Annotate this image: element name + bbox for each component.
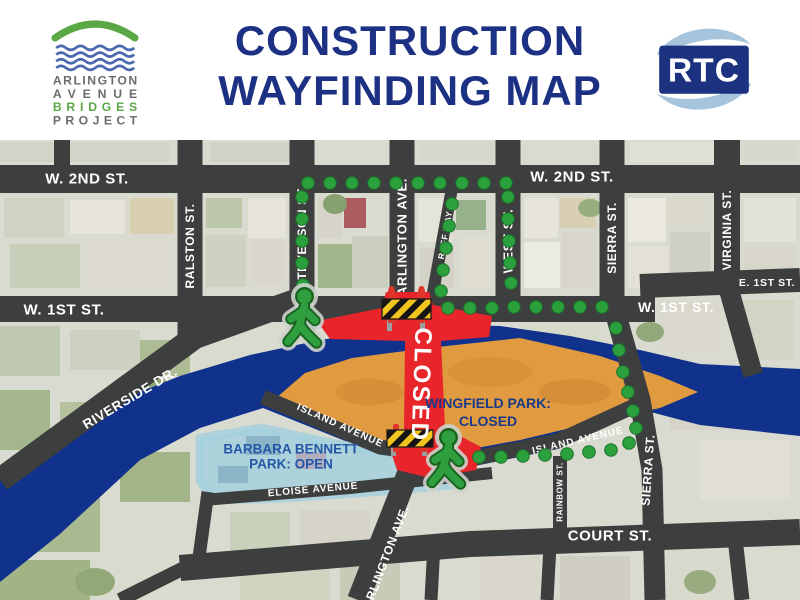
detour-dot (503, 235, 516, 248)
detour-dot (296, 191, 309, 204)
detour-dot (456, 177, 469, 190)
aerial-patch (206, 198, 242, 228)
detour-dot (502, 213, 515, 226)
wayfinding-poster: ARLINGTON AVENUE BRIDGES PROJECT CONSTRU… (0, 0, 800, 600)
detour-dot (412, 177, 425, 190)
street-minor-2 (547, 546, 550, 600)
aerial-patch (318, 244, 352, 288)
aerial-patch (250, 240, 286, 286)
aerial-patch (630, 142, 720, 162)
detour-dot (464, 302, 477, 315)
logo-text-bridges: BRIDGES (53, 100, 137, 114)
detour-dot (296, 235, 309, 248)
tree-patch (323, 194, 347, 214)
wingfield-label-line1: WINGFIELD PARK: (425, 395, 551, 411)
detour-dot (627, 405, 640, 418)
detour-dot (583, 446, 596, 459)
detour-dot (500, 177, 513, 190)
rtc-logo: RTC (648, 12, 760, 124)
aerial-patch (210, 142, 290, 162)
rtc-text: RTC (668, 52, 740, 89)
label-arlington-ave-north: ARLINGTON AVE. (395, 178, 410, 296)
aerial-patch (745, 142, 795, 162)
detour-dot (530, 301, 543, 314)
label-w-2nd-st-west: W. 2ND ST. (45, 171, 129, 188)
aerial-patch (248, 198, 286, 238)
detour-dot (440, 242, 453, 255)
aerial-patch (700, 440, 790, 500)
detour-dot (504, 257, 517, 270)
detour-dot (495, 451, 508, 464)
aerial-patch (420, 142, 500, 162)
pedestrian-icon (432, 424, 462, 484)
detour-dot (324, 177, 337, 190)
logo-text-project: PROJECT (53, 113, 138, 127)
detour-dot (486, 302, 499, 315)
aerial-patch (230, 512, 290, 552)
label-sierra-st-north: SIERRA ST. (605, 202, 619, 274)
wingfield-label-line2: CLOSED (459, 413, 517, 429)
label-court-st: COURT ST. (568, 528, 653, 545)
aerial-patch (560, 556, 630, 600)
aerial-patch (90, 240, 170, 288)
aerial-patch (668, 198, 708, 228)
detour-dot (390, 177, 403, 190)
arlington-bridges-project-logo: ARLINGTON AVENUE BRIDGES PROJECT (36, 8, 154, 130)
bridge-arch-icon (55, 24, 135, 38)
label-w-2nd-st-east: W. 2ND ST. (530, 169, 614, 186)
detour-dot (605, 444, 618, 457)
detour-dot (574, 301, 587, 314)
aerial-patch (456, 200, 486, 230)
label-w-1st-st-east: W. 1ST ST. (638, 299, 714, 315)
detour-dot (561, 448, 574, 461)
detour-dot (435, 285, 448, 298)
map-area: W. 2ND ST. W. 2ND ST. W. 1ST ST. W. 1ST … (0, 140, 800, 600)
aerial-patch (524, 198, 558, 238)
label-ralston-st: RALSTON ST. (183, 203, 197, 288)
page-title-line2: WAYFINDING MAP (180, 66, 640, 116)
tree-patch (636, 322, 664, 342)
detour-dot (517, 450, 530, 463)
aerial-patch (70, 200, 125, 234)
detour-dot (610, 322, 623, 335)
detour-dot (443, 220, 456, 233)
detour-dot (346, 177, 359, 190)
detour-dot (508, 301, 521, 314)
closed-banner-text: CLOSED (406, 327, 437, 443)
detour-dot (302, 177, 315, 190)
construction-map: W. 2ND ST. W. 2ND ST. W. 1ST ST. W. 1ST … (0, 140, 800, 600)
aerial-patch (0, 326, 60, 376)
aerial-patch (70, 330, 140, 370)
barbara-label-line2: PARK: OPEN (249, 457, 333, 472)
label-virginia-st: VIRGINIA ST. (720, 190, 734, 271)
label-e-1st-st: E. 1ST ST. (739, 277, 795, 289)
aerial-patch (628, 198, 666, 242)
logo-text-avenue: AVENUE (53, 87, 137, 101)
detour-dot (617, 366, 630, 379)
aerial-patch (744, 198, 796, 242)
detour-dot (505, 277, 518, 290)
aerial-patch (352, 236, 388, 288)
detour-dot (442, 302, 455, 315)
aerial-patch (10, 244, 80, 288)
label-w-1st-st-west: W. 1ST ST. (23, 302, 104, 319)
detour-dot (437, 264, 450, 277)
detour-dot (434, 177, 447, 190)
river-waves-icon (56, 46, 134, 70)
detour-dot (478, 177, 491, 190)
tree-patch (578, 199, 602, 217)
aerial-patch (206, 235, 246, 287)
aerial-patch (0, 142, 170, 162)
detour-dot (296, 257, 309, 270)
aerial-patch (480, 552, 540, 600)
aerial-patch (460, 236, 490, 288)
page-title-line1: CONSTRUCTION (180, 16, 640, 66)
street-minor-4 (735, 538, 742, 600)
detour-dot (502, 191, 515, 204)
detour-dot (596, 301, 609, 314)
header: ARLINGTON AVENUE BRIDGES PROJECT CONSTRU… (0, 0, 800, 140)
detour-dot (473, 451, 486, 464)
detour-dot (622, 386, 635, 399)
street-minor-1 (431, 544, 434, 600)
logo-text-arlington: ARLINGTON (53, 74, 137, 88)
tree-patch (75, 568, 115, 596)
detour-dot (552, 301, 565, 314)
aerial-patch (562, 232, 596, 288)
detour-dot (296, 213, 309, 226)
label-rainbow-st: RAINBOW ST. (556, 462, 565, 522)
detour-dot (630, 422, 643, 435)
detour-dot (613, 344, 626, 357)
barbara-label-line1: BARBARA BENNETT (223, 442, 359, 457)
pedestrian-icon (288, 283, 318, 343)
aerial-patch (4, 198, 64, 238)
detour-dot (446, 198, 459, 211)
aerial-patch (130, 198, 174, 234)
aerial-patch (524, 242, 560, 288)
detour-dot (368, 177, 381, 190)
detour-dot (623, 437, 636, 450)
tree-patch (684, 570, 716, 594)
page-title: CONSTRUCTION WAYFINDING MAP (180, 16, 640, 117)
aerial-patch (344, 198, 366, 228)
detour-dot (539, 449, 552, 462)
